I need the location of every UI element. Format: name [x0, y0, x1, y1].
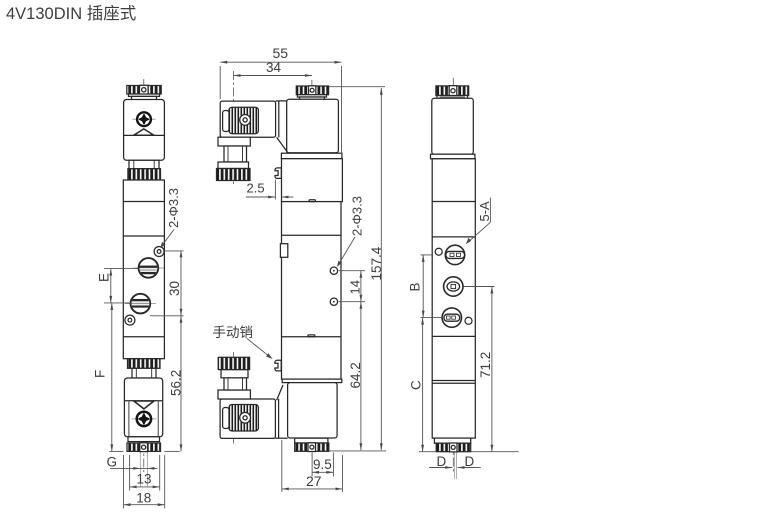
svg-text:2-Φ3.3: 2-Φ3.3 [166, 188, 181, 228]
svg-text:71.2: 71.2 [478, 352, 493, 378]
svg-text:27: 27 [306, 473, 322, 489]
svg-text:34: 34 [266, 60, 282, 75]
svg-text:C: C [409, 380, 424, 390]
svg-text:64.2: 64.2 [348, 362, 363, 388]
svg-text:2.5: 2.5 [247, 181, 265, 196]
svg-text:F: F [93, 370, 108, 378]
svg-text:30: 30 [167, 281, 182, 296]
svg-text:G: G [107, 455, 118, 470]
svg-text:2-Φ3.3: 2-Φ3.3 [350, 196, 365, 236]
svg-text:157.4: 157.4 [369, 246, 384, 280]
svg-text:5-A: 5-A [477, 201, 492, 222]
svg-text:55: 55 [273, 45, 289, 61]
svg-text:56.2: 56.2 [169, 370, 184, 396]
svg-text:D: D [465, 454, 475, 469]
svg-text:手动销: 手动销 [213, 325, 254, 340]
svg-text:13: 13 [137, 472, 152, 487]
svg-text:E: E [97, 273, 112, 282]
svg-text:9.5: 9.5 [313, 457, 332, 472]
svg-text:18: 18 [136, 491, 151, 506]
svg-text:14: 14 [348, 280, 363, 294]
svg-text:B: B [408, 282, 423, 291]
svg-text:D: D [437, 454, 447, 469]
svg-text:4V130DIN 插座式: 4V130DIN 插座式 [6, 4, 136, 23]
